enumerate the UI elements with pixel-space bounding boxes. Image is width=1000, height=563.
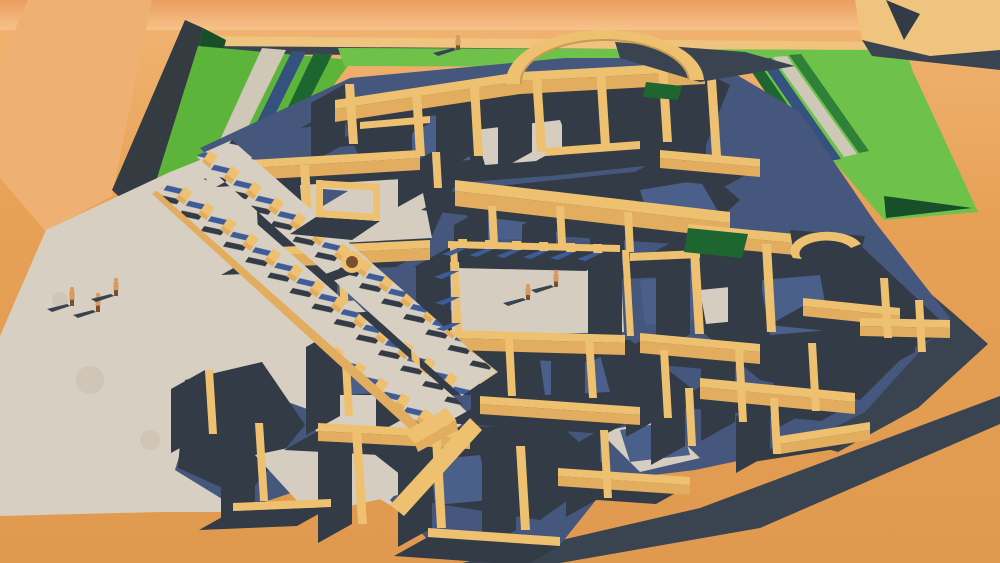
- pedestrians-plaza-legs: [70, 299, 74, 306]
- peristyle-pillars-top: [450, 262, 460, 271]
- visitor-on-wall-legs: [456, 45, 460, 50]
- peristyle-pillars-top: [512, 241, 522, 250]
- visitor-on-wall-head: [456, 35, 460, 39]
- basin-bowl: [346, 256, 358, 268]
- impluvium-frame-left: [316, 180, 323, 217]
- pedestrians-plaza-head: [96, 293, 100, 297]
- domus-reconstruction-render: [0, 0, 1000, 563]
- pedestrians-plaza-head: [114, 278, 118, 282]
- visitors-courtyard-head: [554, 270, 558, 274]
- visitors-courtyard-body: [554, 274, 559, 282]
- 3d-model-viewport[interactable]: [0, 0, 1000, 563]
- visitors-courtyard-body: [526, 288, 531, 295]
- peristyle-pillars-top: [539, 242, 549, 251]
- visitors-courtyard-legs: [554, 281, 558, 287]
- visitor-on-wall-body: [456, 39, 461, 45]
- ruin-walls-front: [860, 326, 950, 338]
- ruin-walls-shadow: [318, 430, 352, 543]
- impluvium-frame-right: [373, 184, 380, 221]
- visitors-courtyard-head: [526, 284, 530, 288]
- peristyle-pillars-top: [451, 288, 461, 297]
- scene-layers: [0, 0, 1000, 563]
- pedestrians-plaza-legs: [96, 305, 100, 312]
- peristyle-pillars-top: [566, 243, 576, 252]
- pedestrians-plaza-head: [70, 287, 74, 291]
- peristyle-pillars-top: [485, 240, 495, 249]
- pedestrians-plaza-legs: [114, 290, 118, 296]
- peristyle-pillars-top: [593, 244, 603, 253]
- peristyle-pillars-top: [458, 239, 468, 248]
- pedestrians-plaza-body: [114, 282, 119, 290]
- peristyle-pillars-top: [452, 314, 462, 323]
- plaza-mottle: [140, 430, 160, 450]
- plaza-mottle: [76, 366, 104, 394]
- pedestrians-plaza-body: [70, 291, 75, 300]
- visitors-courtyard-legs: [526, 295, 530, 300]
